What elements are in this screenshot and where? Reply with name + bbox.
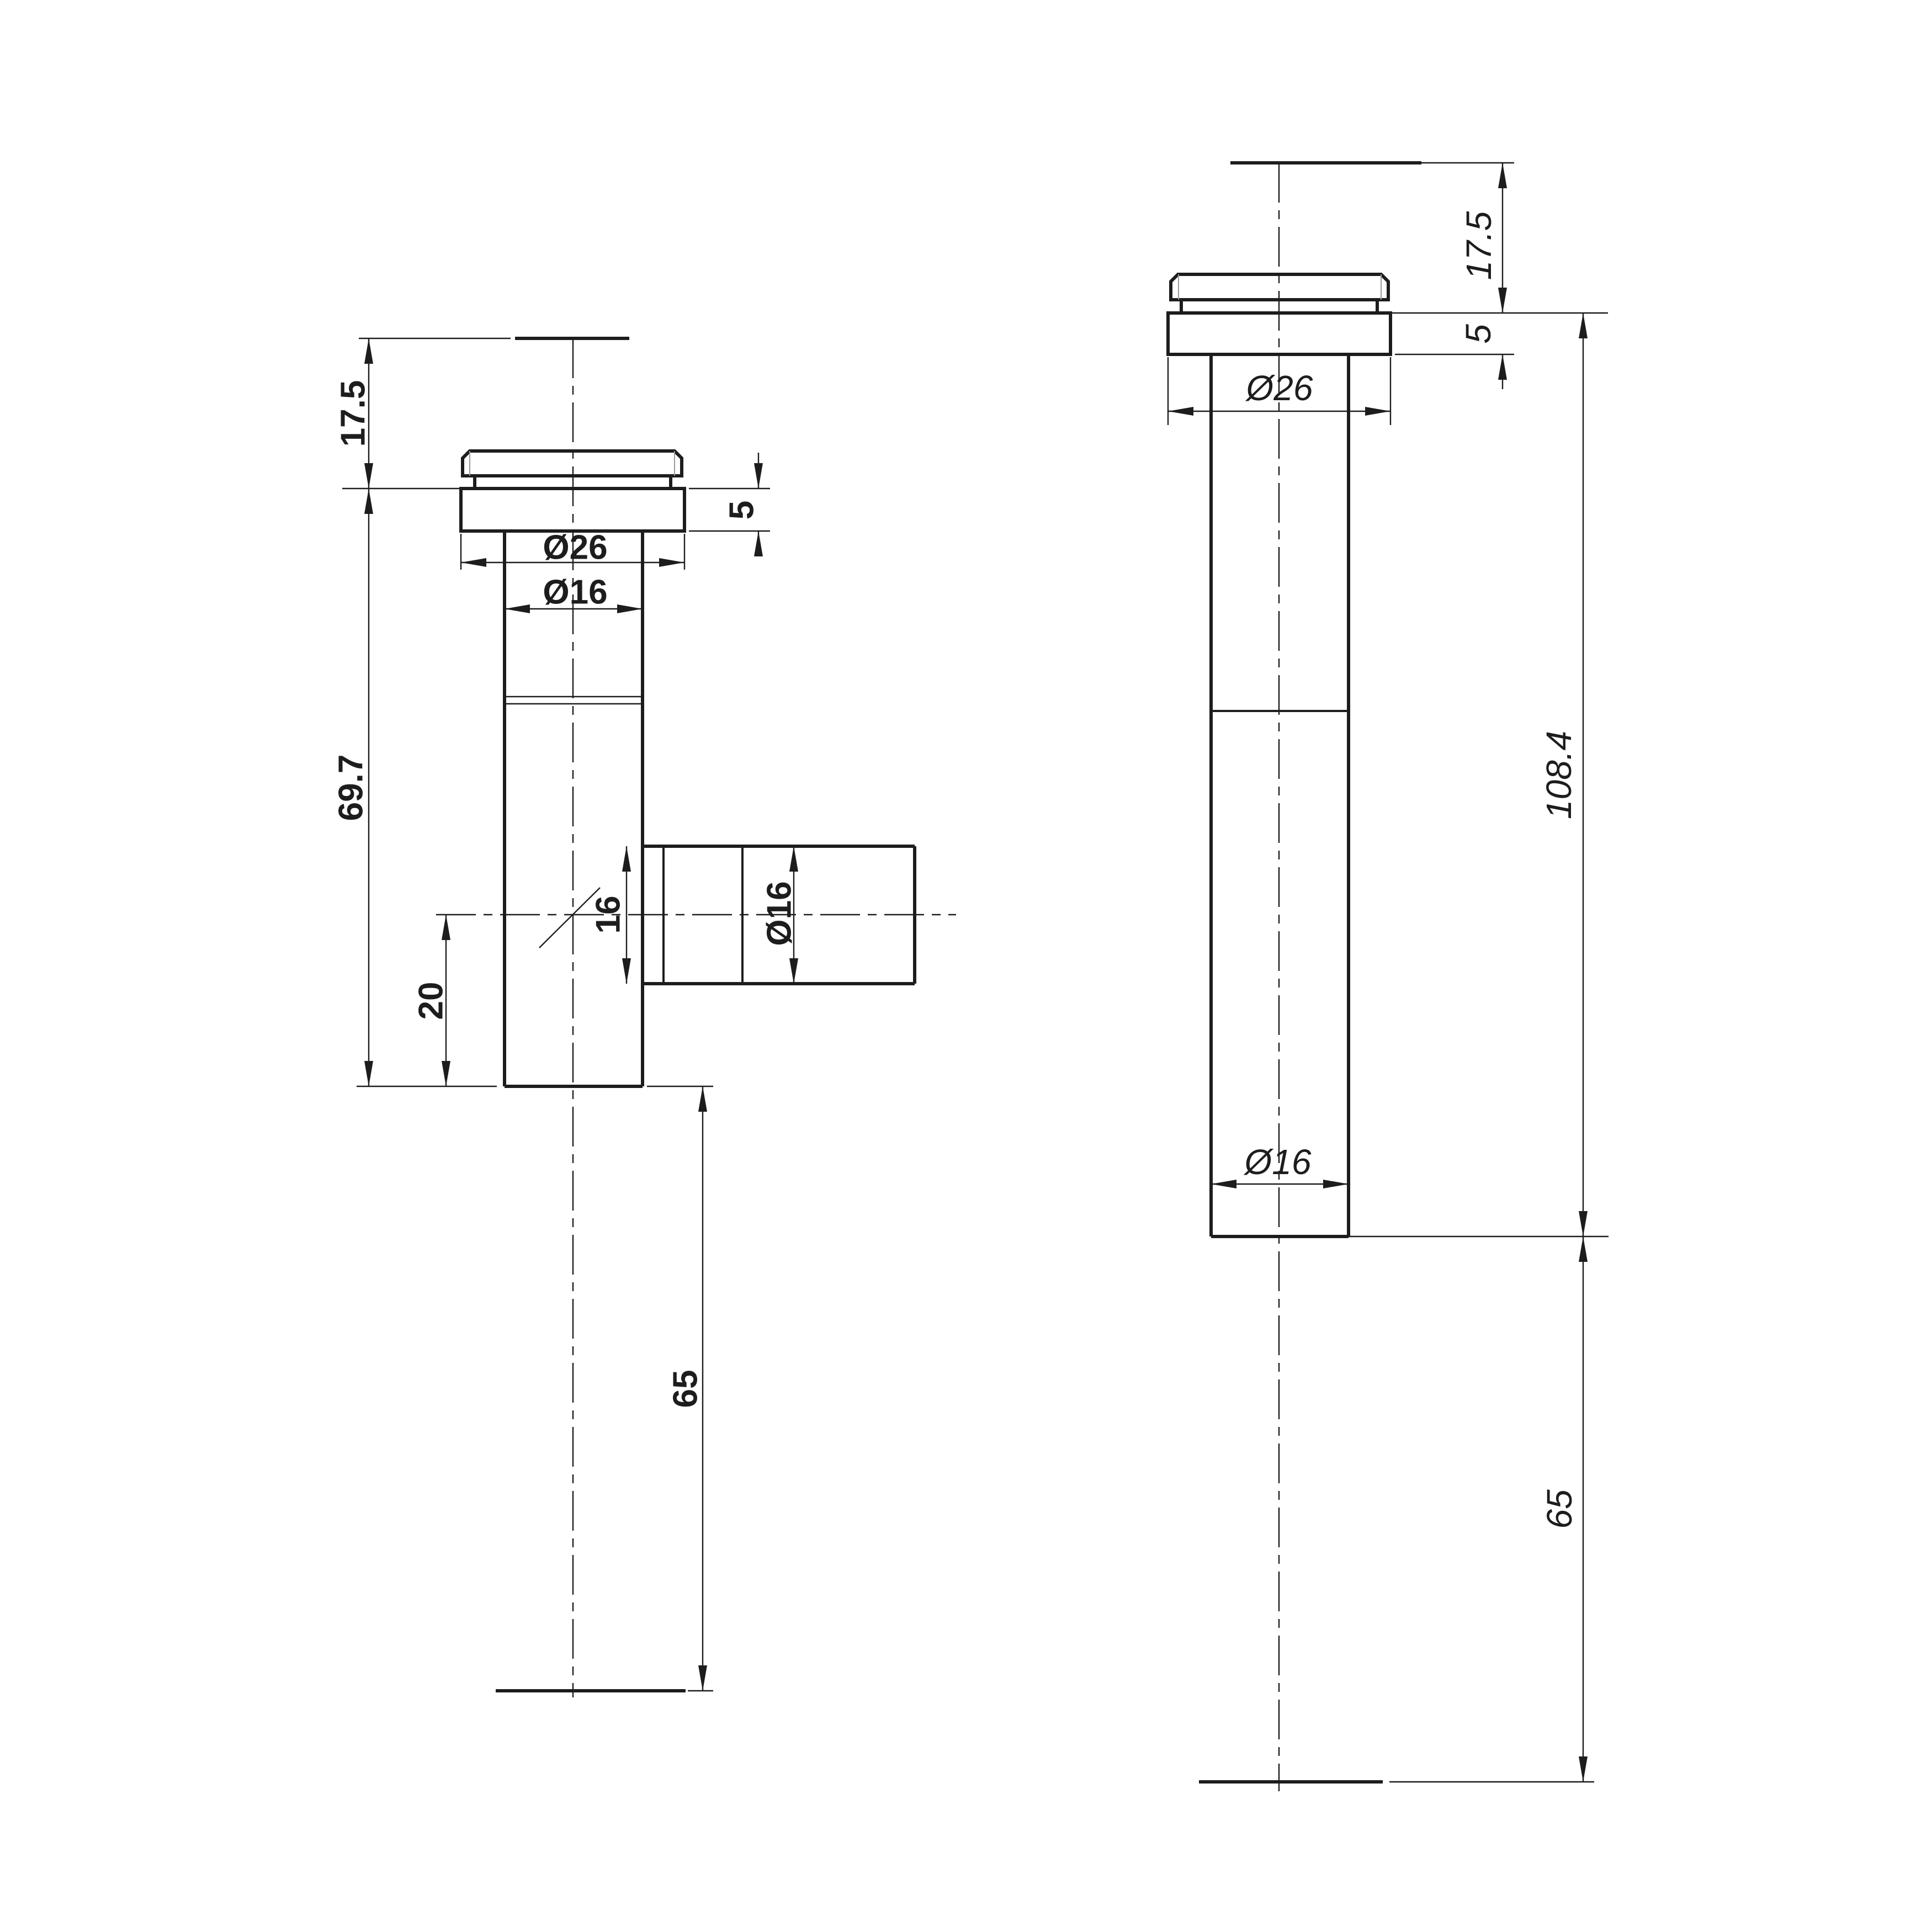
left-dim-label-65: 65 (667, 1370, 705, 1408)
arrowhead (698, 1665, 707, 1691)
right-dim-108-4-and-65: 108.4 65 (1539, 313, 1588, 1782)
arrowhead (622, 846, 631, 872)
left-dim-dia26: Ø26 (461, 529, 684, 567)
arrowhead (789, 958, 798, 984)
arrowhead (442, 1061, 450, 1086)
arrowhead (1365, 407, 1390, 416)
arrowhead (505, 604, 530, 613)
arrowhead (364, 463, 373, 489)
left-dim-label-dia26: Ø26 (543, 529, 607, 567)
arrowhead (1579, 313, 1588, 338)
right-dim-label-108-4: 108.4 (1539, 731, 1579, 819)
arrowhead (1323, 1180, 1349, 1188)
left-dim-label-69-7: 69.7 (332, 755, 370, 821)
arrowhead (461, 558, 486, 567)
arrowhead (442, 915, 450, 940)
arrowhead (1579, 1756, 1588, 1782)
arrowhead (698, 1086, 707, 1112)
arrowhead (754, 531, 763, 556)
left-dim-label-dia16-branch: Ø16 (761, 881, 799, 946)
arrowhead (1498, 163, 1507, 188)
arrowhead (622, 958, 631, 984)
right-dim-label-65: 65 (1540, 1489, 1579, 1529)
drawing-sheet: 17.5 69.7 5 Ø26 Ø16 (0, 0, 1932, 1932)
left-dim-20: 20 (412, 915, 451, 1086)
left-dim-dia16-tube: Ø16 (505, 574, 643, 614)
left-dim-65: 65 (667, 1086, 708, 1691)
arrowhead (789, 846, 798, 872)
arrowhead (754, 463, 763, 489)
left-dim-16: 16 (590, 846, 631, 984)
left-dim-17-5-and-69-7: 17.5 69.7 (332, 338, 374, 1086)
arrowhead (1579, 1211, 1588, 1236)
right-dim-label-dia16: Ø16 (1244, 1142, 1312, 1182)
left-dim-label-20: 20 (412, 982, 450, 1020)
left-dim-dia16-branch: Ø16 (761, 846, 799, 984)
arrowhead (1498, 288, 1507, 313)
technical-drawing: 17.5 69.7 5 Ø26 Ø16 (0, 0, 1932, 1932)
right-dim-label-17-5: 17.5 (1459, 211, 1499, 280)
arrowhead (364, 1061, 373, 1086)
arrowhead (1168, 407, 1193, 416)
arrowhead (364, 489, 373, 514)
right-dim-label-5: 5 (1458, 324, 1498, 344)
right-dim-17-5-and-5: 17.5 5 (1458, 163, 1507, 389)
right-dim-dia16: Ø16 (1211, 1142, 1349, 1188)
left-cap-outline (463, 451, 682, 476)
arrowhead (659, 558, 684, 567)
arrowhead (1579, 1236, 1588, 1262)
right-view: 17.5 5 Ø26 Ø16 108.4 65 (1168, 163, 1609, 1791)
left-dim-label-17-5: 17.5 (335, 380, 373, 447)
left-dim-label-dia16-tube: Ø16 (543, 574, 607, 612)
left-view: 17.5 69.7 5 Ø26 Ø16 (332, 338, 957, 1697)
left-dim-label-5: 5 (723, 501, 761, 519)
right-dim-label-dia26: Ø26 (1245, 368, 1313, 408)
arrowhead (617, 604, 643, 613)
left-dim-label-16: 16 (590, 896, 628, 934)
arrowhead (364, 338, 373, 364)
left-dim-5: 5 (723, 453, 763, 556)
arrowhead (1211, 1180, 1236, 1188)
arrowhead (1498, 354, 1507, 380)
